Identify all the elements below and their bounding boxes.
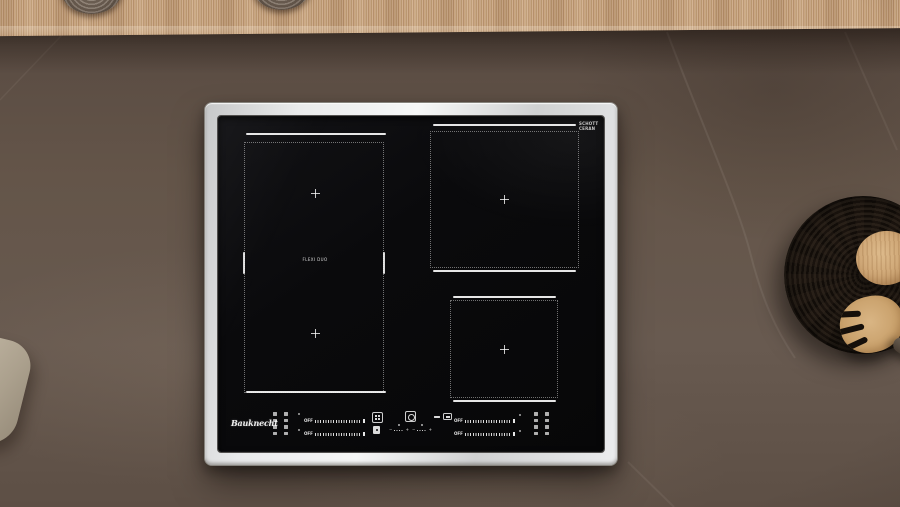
timer-dot	[421, 424, 423, 426]
child-lock-icon[interactable]	[373, 426, 380, 434]
flex-zone-mid-mark-right	[383, 252, 385, 274]
pause-icon[interactable]	[434, 416, 440, 418]
plus-icon[interactable]: +	[429, 428, 432, 432]
glass-brand-logo: SCHOTT CERAN	[579, 122, 598, 131]
slider-off-label: OFF	[304, 432, 313, 436]
power-on-off-icon[interactable]	[443, 413, 452, 420]
kitchen-scene: FLEXI DUO SCHOTT CERAN Bauknecht	[0, 0, 900, 507]
flex-zone-label: FLEXI DUO	[274, 257, 356, 262]
auto-function-icon[interactable]	[405, 411, 416, 422]
zone-indicator-grid-right	[534, 412, 549, 435]
hob-glass-surface: FLEXI DUO SCHOTT CERAN Bauknecht	[218, 116, 604, 452]
flex-zone-mid-mark-left	[243, 252, 245, 274]
timer-control-left[interactable]: − +	[389, 424, 409, 434]
minus-icon[interactable]: −	[389, 428, 392, 432]
flex-zone-dotted-border	[244, 142, 384, 393]
power-slider-rear-right[interactable]: OFF	[454, 431, 515, 437]
indicator-dot	[519, 414, 521, 416]
induction-hob-frame: FLEXI DUO SCHOTT CERAN Bauknecht	[204, 102, 618, 466]
slider-tick-strip[interactable]	[465, 420, 511, 423]
fork-slot	[834, 323, 865, 336]
slider-off-label: OFF	[304, 419, 313, 423]
indicator-dot	[298, 413, 300, 415]
cooking-zone-center-cross	[500, 345, 509, 354]
power-slider-front-left[interactable]: OFF	[304, 418, 365, 424]
flex-zone-bottom-line	[246, 391, 386, 393]
timer-track	[417, 430, 427, 431]
cooking-zone-center-cross	[311, 189, 320, 198]
slider-boost-mark	[513, 432, 515, 436]
power-slider-rear-left[interactable]: OFF	[304, 431, 365, 437]
slider-boost-mark	[363, 432, 365, 436]
slider-tick-strip[interactable]	[315, 433, 361, 436]
fork-paddle	[834, 289, 900, 359]
slider-boost-mark	[513, 419, 515, 423]
flexi-bridge-icon[interactable]	[372, 412, 383, 423]
cooking-zone-center-cross	[311, 329, 320, 338]
zone-indicator-grid-left	[273, 412, 288, 435]
fork-slot	[834, 311, 861, 318]
plus-icon[interactable]: +	[406, 428, 409, 432]
zone-bottom-line	[453, 400, 556, 402]
zone-top-line	[453, 296, 556, 298]
fork-slot	[837, 336, 868, 355]
zone-top-line	[433, 124, 576, 126]
minus-icon[interactable]: −	[412, 428, 415, 432]
cooking-zone-center-cross	[500, 195, 509, 204]
slider-off-label: OFF	[454, 432, 463, 436]
slider-off-label: OFF	[454, 419, 463, 423]
brand-logo: Bauknecht	[231, 418, 278, 428]
indicator-dot	[298, 429, 300, 431]
glass-brand-line2: CERAN	[579, 127, 598, 132]
slider-tick-strip[interactable]	[315, 420, 361, 423]
slider-boost-mark	[363, 419, 365, 423]
zone-bottom-line	[433, 270, 576, 272]
flex-zone-top-line	[246, 133, 386, 135]
slider-tick-strip[interactable]	[465, 433, 511, 436]
indicator-dot	[519, 430, 521, 432]
timer-dot	[398, 424, 400, 426]
power-slider-front-right[interactable]: OFF	[454, 418, 515, 424]
timer-control-right[interactable]: − +	[412, 424, 432, 434]
timer-track	[394, 430, 404, 431]
